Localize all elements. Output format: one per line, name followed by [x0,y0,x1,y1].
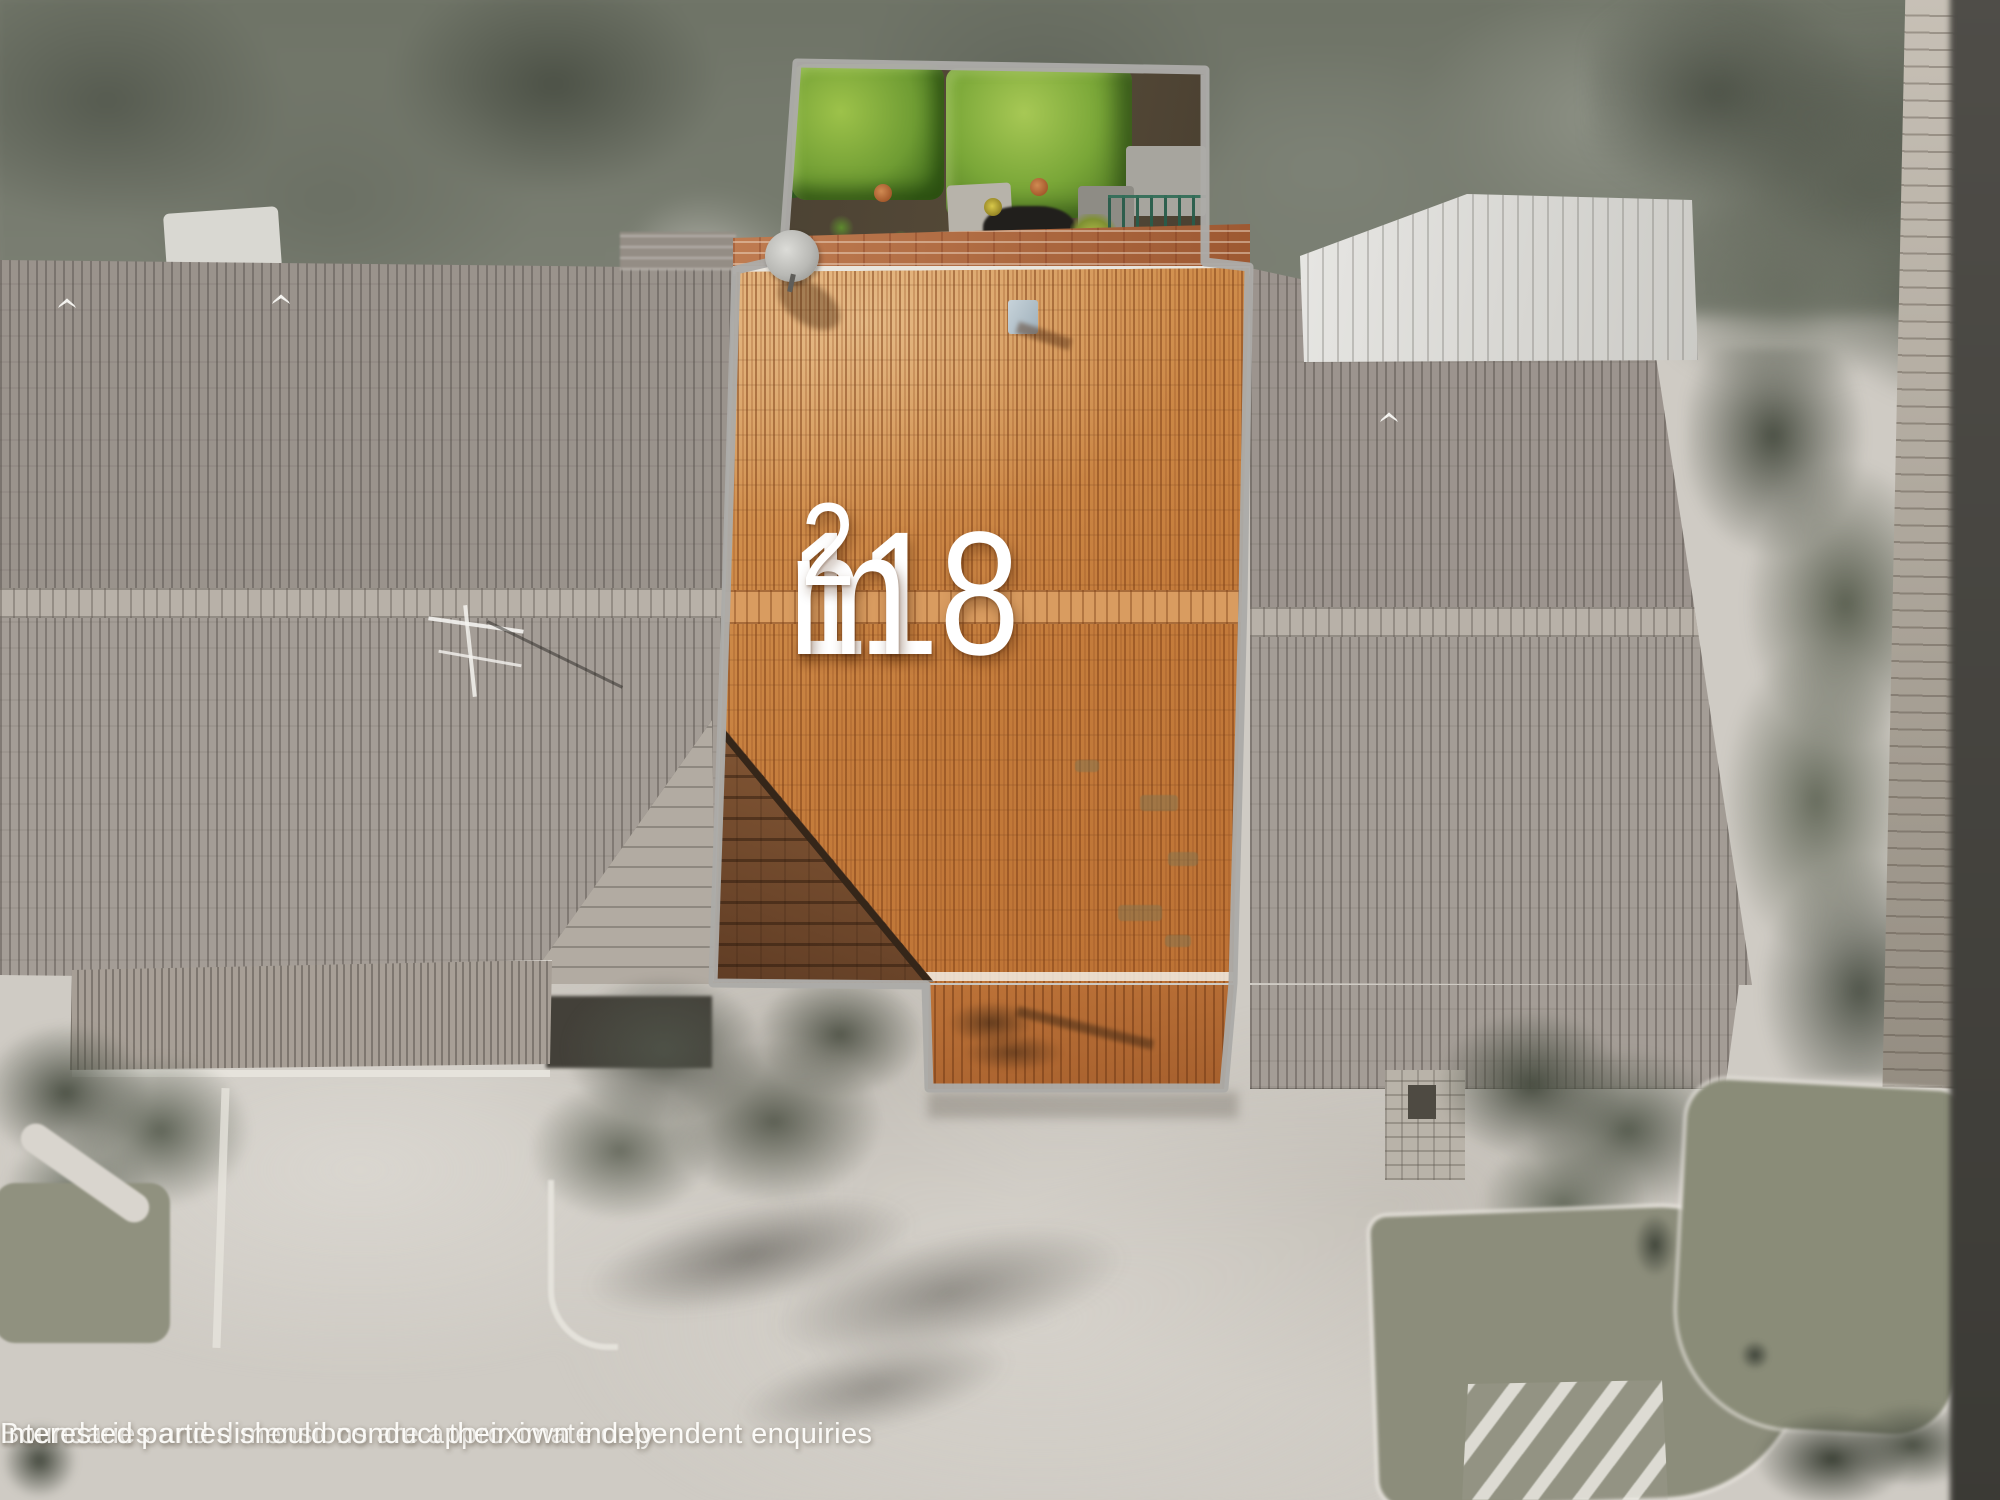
area-superscript: 2 [801,486,856,604]
aerial-photo: 118m2 Boundaries and dimensions are appr… [0,0,2000,1500]
satellite-dish [765,230,819,282]
disclaimer-line2: Interested parties should conduct their … [0,1419,872,1449]
property-boundary-outline [0,0,2000,1500]
